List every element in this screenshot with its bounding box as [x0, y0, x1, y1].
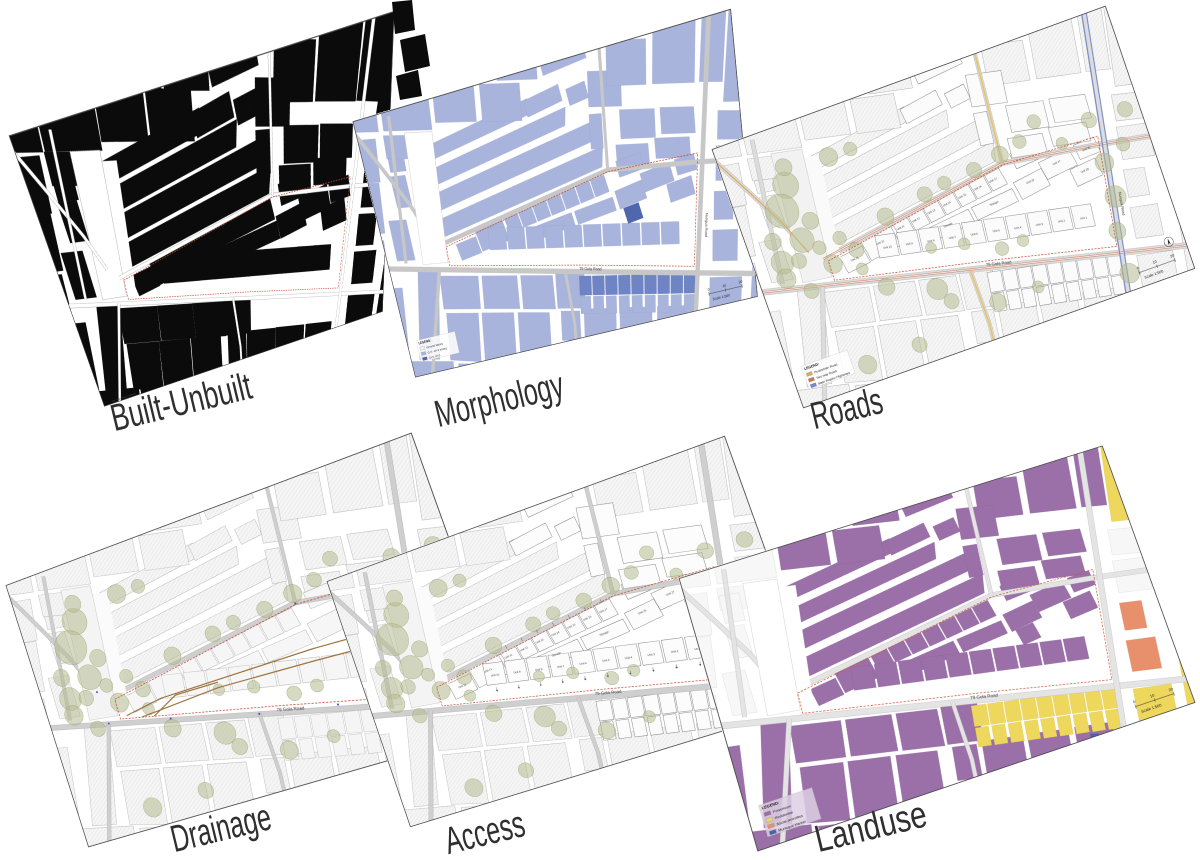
svg-text:Nungua Road: Nungua Road: [704, 213, 708, 237]
svg-text:79 Gola Road: 79 Gola Road: [579, 266, 602, 271]
